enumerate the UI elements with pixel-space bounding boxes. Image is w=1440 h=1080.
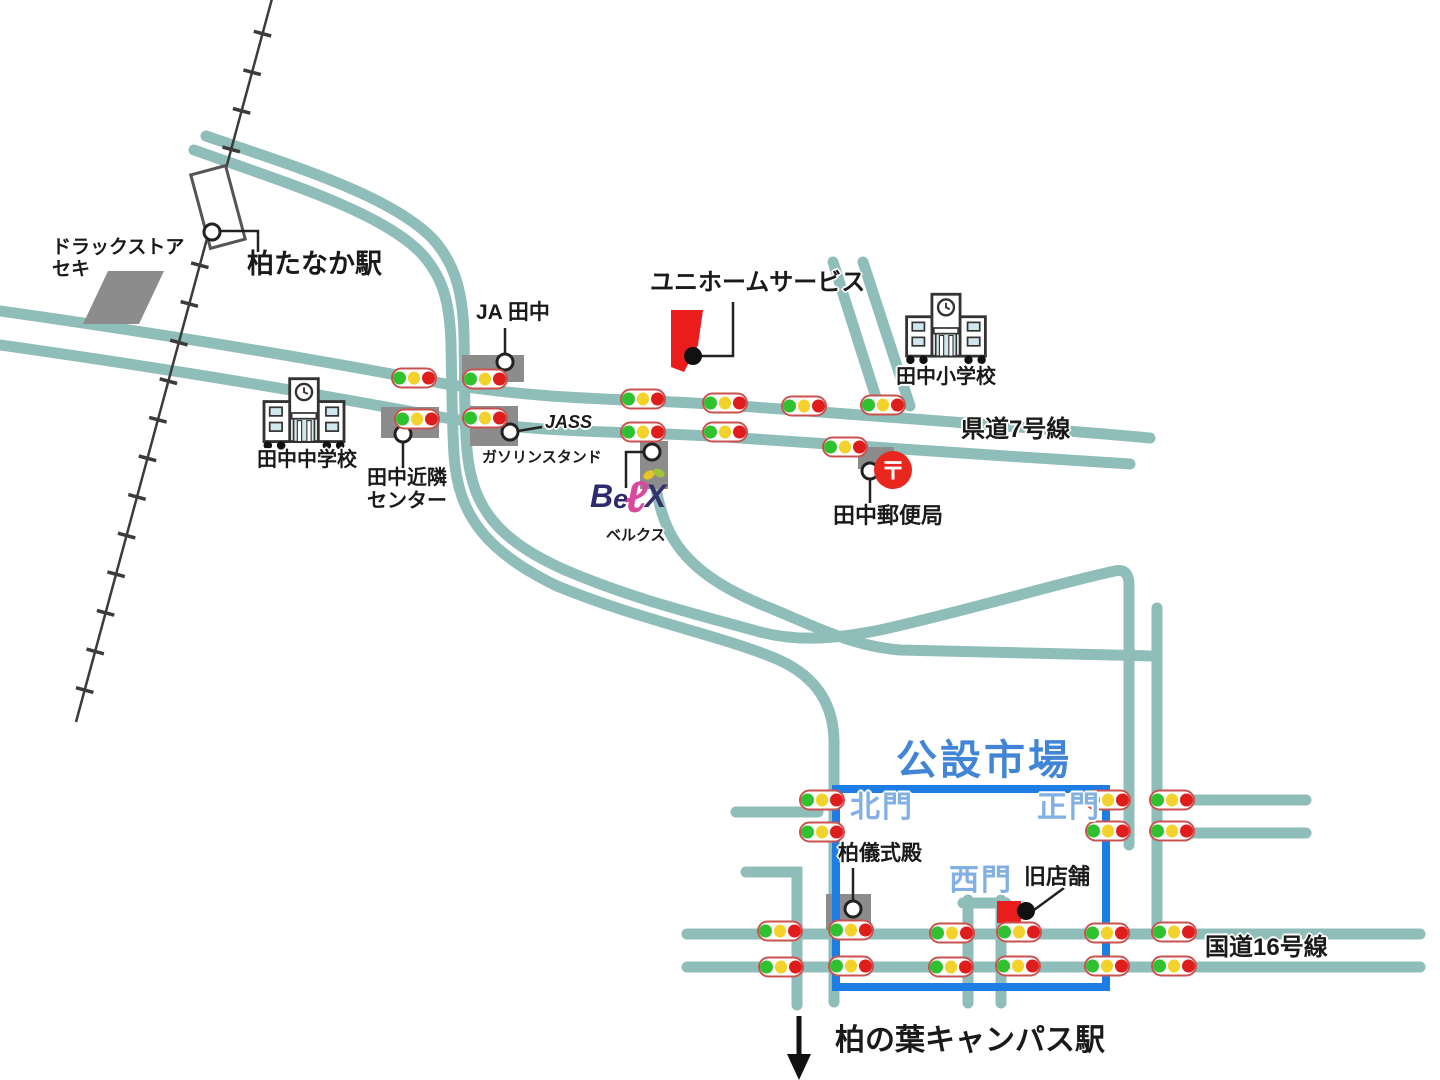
post-office-label: 田中郵便局 <box>833 503 943 528</box>
ja-tanaka-label: JA 田中 <box>476 301 550 325</box>
traffic-light-icon <box>757 921 803 942</box>
traffic-light-icon <box>822 437 868 458</box>
access-map: 〒 ドラックストア セキ 柏たなか駅 JA 田中 ユニホームサービス 田中小学校… <box>0 0 1440 1080</box>
ceremony-hall-label: 柏儀式殿 <box>838 842 922 866</box>
belx-logo: BeℓX <box>590 478 666 515</box>
belx-point <box>644 444 660 460</box>
traffic-light-icon <box>391 368 437 389</box>
traffic-light-icon <box>928 957 974 978</box>
old-shop-label: 旧店舗 <box>1024 864 1090 889</box>
traffic-light-icon <box>828 956 874 977</box>
traffic-light-icon <box>1149 790 1195 811</box>
prefectural-road-label: 県道7号線 <box>961 416 1070 444</box>
road-network <box>0 136 1420 1005</box>
traffic-light-icon <box>620 389 666 410</box>
old-shop-point <box>1017 902 1035 920</box>
belx-kana-label: ベルクス <box>606 527 666 544</box>
traffic-light-icon <box>462 408 508 429</box>
traffic-light-icon <box>758 957 804 978</box>
main-gate-label: 正門 <box>1037 791 1101 826</box>
elementary-school-icon <box>906 294 986 364</box>
national-route-label: 国道16号線 <box>1205 934 1328 962</box>
traffic-light-icon <box>462 369 508 390</box>
traffic-light-icon <box>1084 956 1130 977</box>
traffic-light-icon <box>996 922 1042 943</box>
traffic-light-icon <box>394 409 440 430</box>
svg-text:〒: 〒 <box>881 458 905 485</box>
map-canvas: 〒 <box>0 0 1440 1080</box>
traffic-light-icon <box>781 396 827 417</box>
traffic-light-icon <box>799 822 845 843</box>
jass-label: JASS <box>545 412 592 433</box>
uniform-service-label: ユニホームサービス <box>650 269 865 297</box>
junior-high-school-label: 田中中学校 <box>257 449 357 472</box>
belx-sprout-icon <box>642 466 666 484</box>
drugstore-label: ドラックストア セキ <box>52 237 184 281</box>
traffic-light-icon <box>860 395 906 416</box>
gas-station-label: ガソリンスタンド <box>482 449 602 466</box>
ceremony-hall-point <box>845 901 861 917</box>
traffic-light-icon <box>929 923 975 944</box>
traffic-light-icon <box>1151 956 1197 977</box>
traffic-light-icon <box>799 790 845 811</box>
ja-point <box>497 354 513 370</box>
neighborhood-center-label: 田中近隣 センター <box>367 467 447 513</box>
gas-station-point <box>502 424 518 440</box>
traffic-light-icon <box>995 956 1041 977</box>
campus-station-label: 柏の葉キャンパス駅 <box>835 1024 1105 1059</box>
road-kendo7-lower <box>0 345 1130 464</box>
west-gate-label: 西門 <box>949 864 1013 899</box>
traffic-light-icon <box>828 920 874 941</box>
traffic-light-icon <box>1151 922 1197 943</box>
north-gate-label: 北門 <box>850 791 914 826</box>
public-market-label: 公設市場 <box>896 737 1072 784</box>
traffic-light-icon <box>1149 821 1195 842</box>
station-label: 柏たなか駅 <box>247 249 382 280</box>
traffic-light-icon <box>1084 923 1130 944</box>
uniform-service-point <box>684 347 702 365</box>
traffic-light-icon <box>702 393 748 414</box>
down-arrow-icon <box>787 1016 811 1080</box>
station-point <box>204 224 220 240</box>
elementary-school-label: 田中小学校 <box>896 366 996 389</box>
traffic-light-icon <box>620 422 666 443</box>
traffic-light-icon <box>702 422 748 443</box>
post-office-icon: 〒 <box>874 451 912 489</box>
